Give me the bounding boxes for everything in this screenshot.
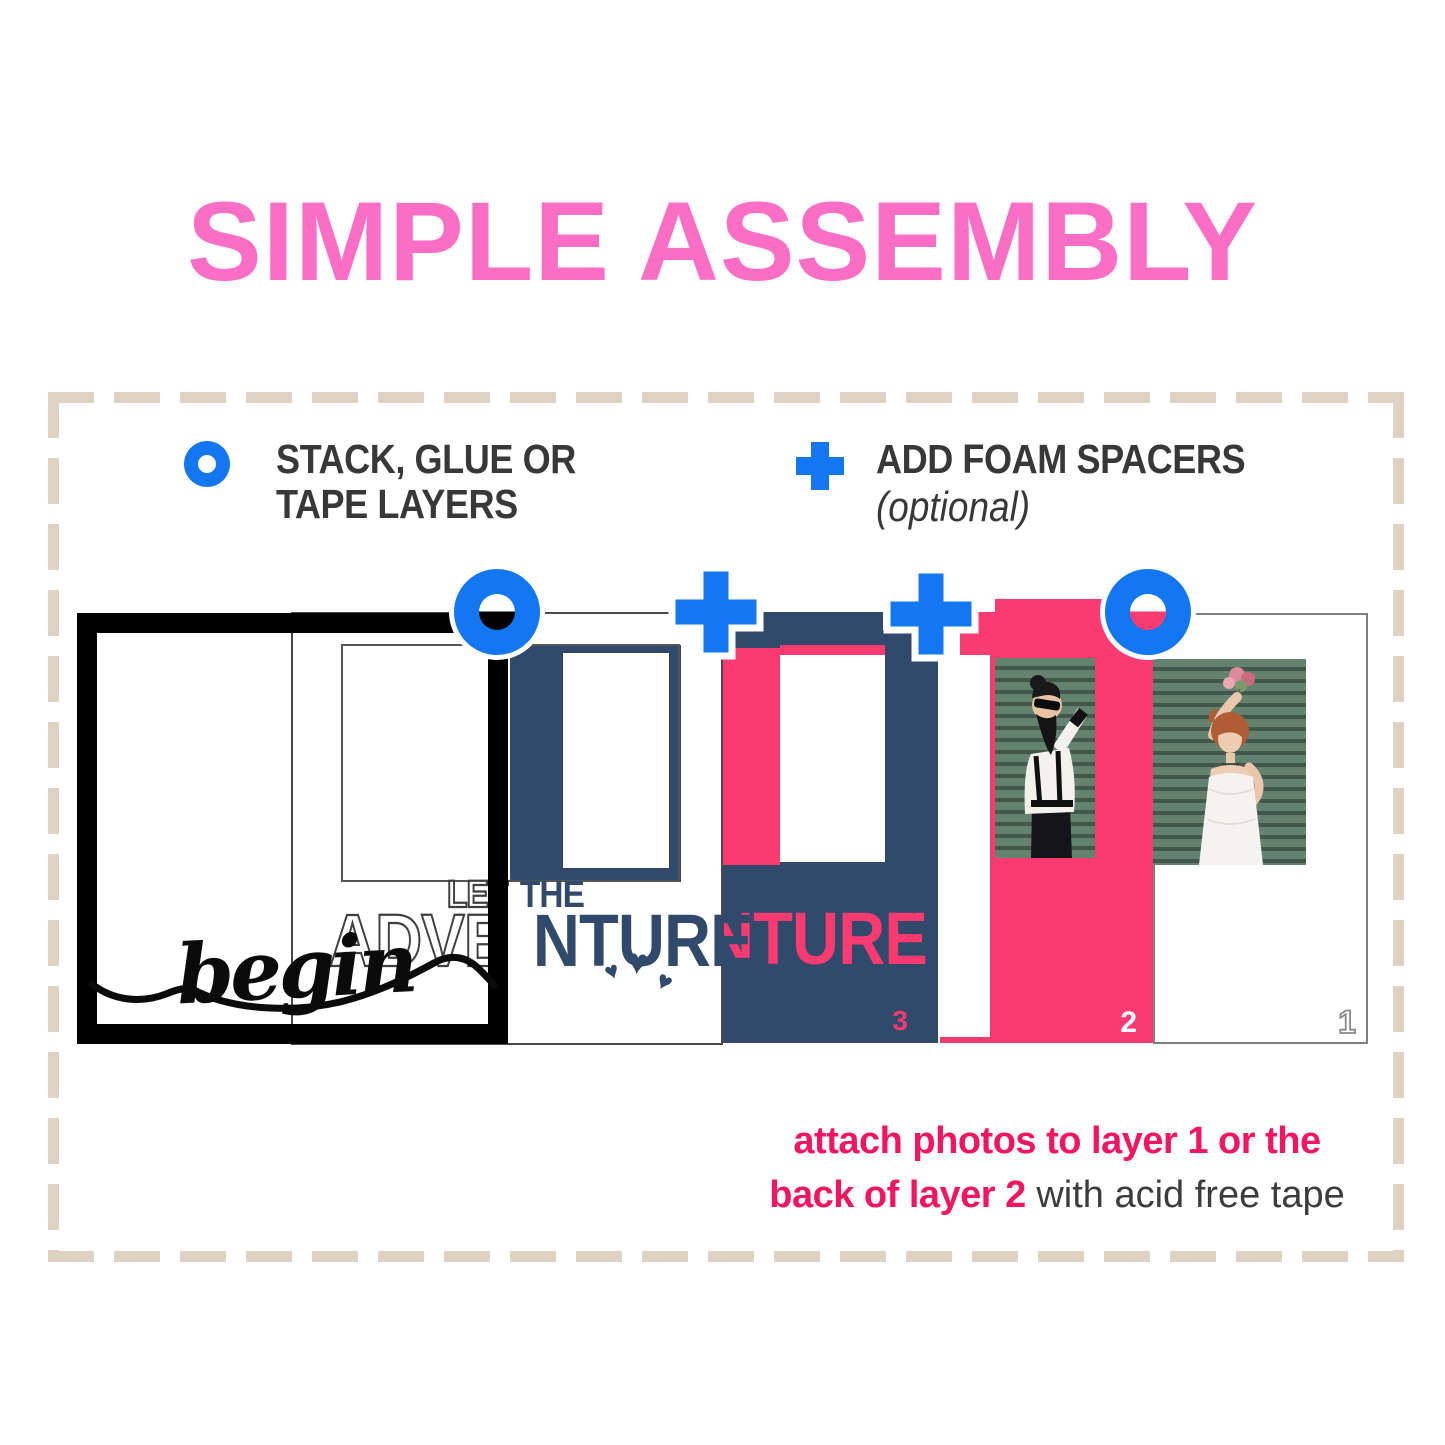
- man-illustration: [995, 658, 1095, 858]
- photo-woman: [1153, 659, 1306, 865]
- layer3-tab: [763, 612, 883, 630]
- stack-glue-tape-label: STACK, GLUE OR TAPE LAYERS: [276, 437, 576, 527]
- layer2-number: 2: [1120, 1008, 1137, 1038]
- layer3-window-pink-top: [780, 645, 885, 655]
- layer2-tab: [995, 599, 1105, 612]
- heart-icon: ♥: [625, 943, 650, 981]
- foam-label: ADD FOAM SPACERS: [876, 437, 1245, 482]
- window-white-showthrough: [562, 652, 670, 869]
- page-title: SIMPLE ASSEMBLY: [0, 186, 1445, 298]
- ring-icon: [1100, 564, 1196, 660]
- plus-icon: [666, 562, 766, 662]
- woman-illustration: [1153, 659, 1306, 865]
- foam-optional-note: (optional): [876, 482, 1245, 532]
- note-line2: back of layer 2 with acid free tape: [757, 1168, 1357, 1222]
- note-line2-rest: with acid free tape: [1026, 1174, 1345, 1216]
- dashed-border-left: [48, 392, 59, 1262]
- note-line1-text: attach photos to layer 1 or the: [793, 1120, 1320, 1162]
- plus-icon: [881, 564, 981, 664]
- dashed-border-top: [48, 392, 1404, 403]
- layer2-side-cut: [940, 655, 990, 1037]
- layer1-card: 1: [1153, 613, 1368, 1044]
- layer3-window-pink-left: [723, 648, 780, 865]
- note-line2-bold: back of layer 2: [769, 1174, 1026, 1216]
- dashed-border-right: [1393, 392, 1404, 1262]
- stack-label-line2: TAPE LAYERS: [276, 482, 576, 527]
- layer1-number: 1: [1338, 1006, 1356, 1038]
- dashed-border-bottom: [48, 1251, 1404, 1262]
- begin-script-art: begin: [82, 918, 512, 1063]
- simple-assembly-graphic: SIMPLE ASSEMBLY STACK, GLUE OR TAPE LAYE…: [0, 0, 1445, 1445]
- ring-icon: [449, 564, 545, 660]
- plus-icon: [793, 439, 847, 493]
- script-word: begin: [174, 918, 416, 1023]
- foam-spacers-label: ADD FOAM SPACERS (optional): [876, 437, 1245, 532]
- photo-man: [995, 658, 1095, 858]
- layer3-photo-window: [780, 655, 885, 862]
- ring-icon: [184, 441, 230, 487]
- stack-label-line1: STACK, GLUE OR: [276, 437, 576, 482]
- note-line1: attach photos to layer 1 or the: [757, 1114, 1357, 1168]
- attach-photos-note: attach photos to layer 1 or the back of …: [757, 1114, 1357, 1222]
- layer3-number: 3: [892, 1007, 908, 1035]
- layer2-card: 2: [940, 612, 1153, 1043]
